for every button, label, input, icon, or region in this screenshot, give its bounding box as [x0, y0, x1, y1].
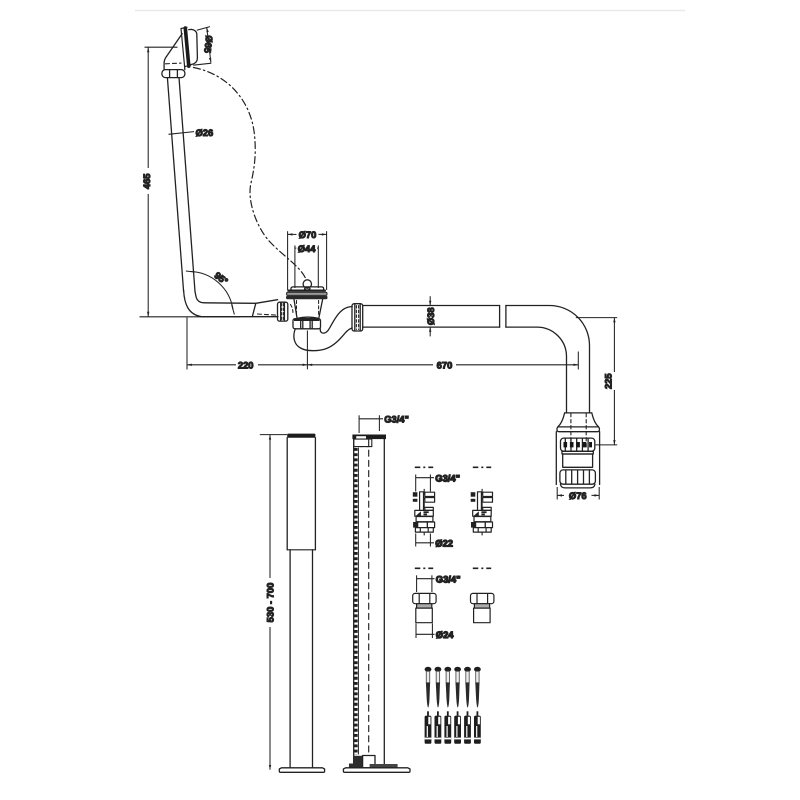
- svg-text:530 - 700: 530 - 700: [265, 583, 276, 623]
- svg-text:G3/4": G3/4": [384, 414, 409, 425]
- svg-text:Ø65: Ø65: [202, 35, 215, 54]
- svg-text:Ø26: Ø26: [196, 127, 214, 138]
- svg-text:Ø38: Ø38: [425, 307, 436, 325]
- svg-text:Ø44: Ø44: [298, 243, 317, 254]
- svg-text:Ø76: Ø76: [569, 490, 587, 501]
- svg-text:670: 670: [437, 359, 453, 370]
- svg-text:Ø22: Ø22: [435, 538, 453, 549]
- svg-text:220: 220: [238, 359, 254, 370]
- svg-text:Ø24: Ø24: [436, 629, 455, 640]
- svg-text:Ø70: Ø70: [299, 229, 317, 240]
- svg-text:465: 465: [141, 173, 152, 189]
- svg-text:225: 225: [602, 373, 613, 389]
- svg-text:G3/4": G3/4": [436, 573, 461, 584]
- svg-text:G3/4": G3/4": [435, 472, 460, 483]
